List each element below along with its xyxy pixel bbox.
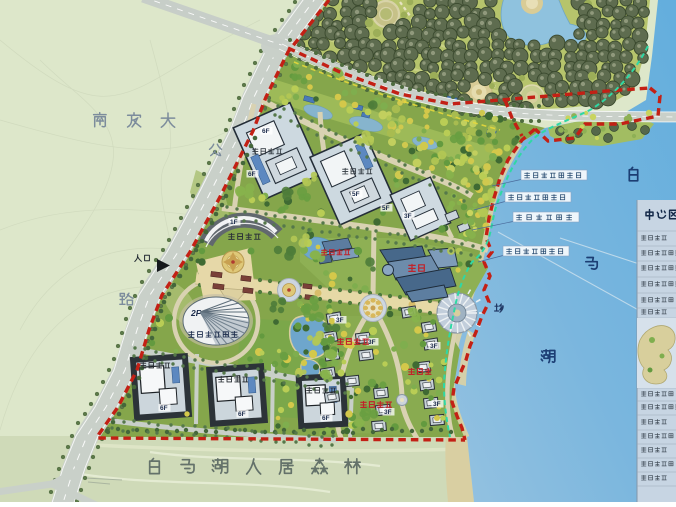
svg-text:6F: 6F bbox=[248, 171, 256, 178]
svg-text:3F: 3F bbox=[430, 343, 438, 350]
svg-text:6F: 6F bbox=[238, 411, 246, 418]
svg-text:3F: 3F bbox=[433, 401, 441, 408]
svg-text:3F: 3F bbox=[368, 339, 376, 346]
svg-text:6F: 6F bbox=[160, 405, 168, 412]
svg-text:3F: 3F bbox=[336, 317, 344, 324]
svg-text:6F: 6F bbox=[262, 128, 270, 135]
svg-text:3F: 3F bbox=[384, 409, 392, 416]
svg-text:3F: 3F bbox=[404, 213, 412, 220]
svg-text:2F: 2F bbox=[190, 308, 202, 318]
svg-text:6F: 6F bbox=[322, 415, 330, 422]
svg-text:5F: 5F bbox=[382, 205, 390, 212]
svg-text:5F: 5F bbox=[352, 191, 360, 198]
svg-text:1F: 1F bbox=[230, 219, 238, 226]
